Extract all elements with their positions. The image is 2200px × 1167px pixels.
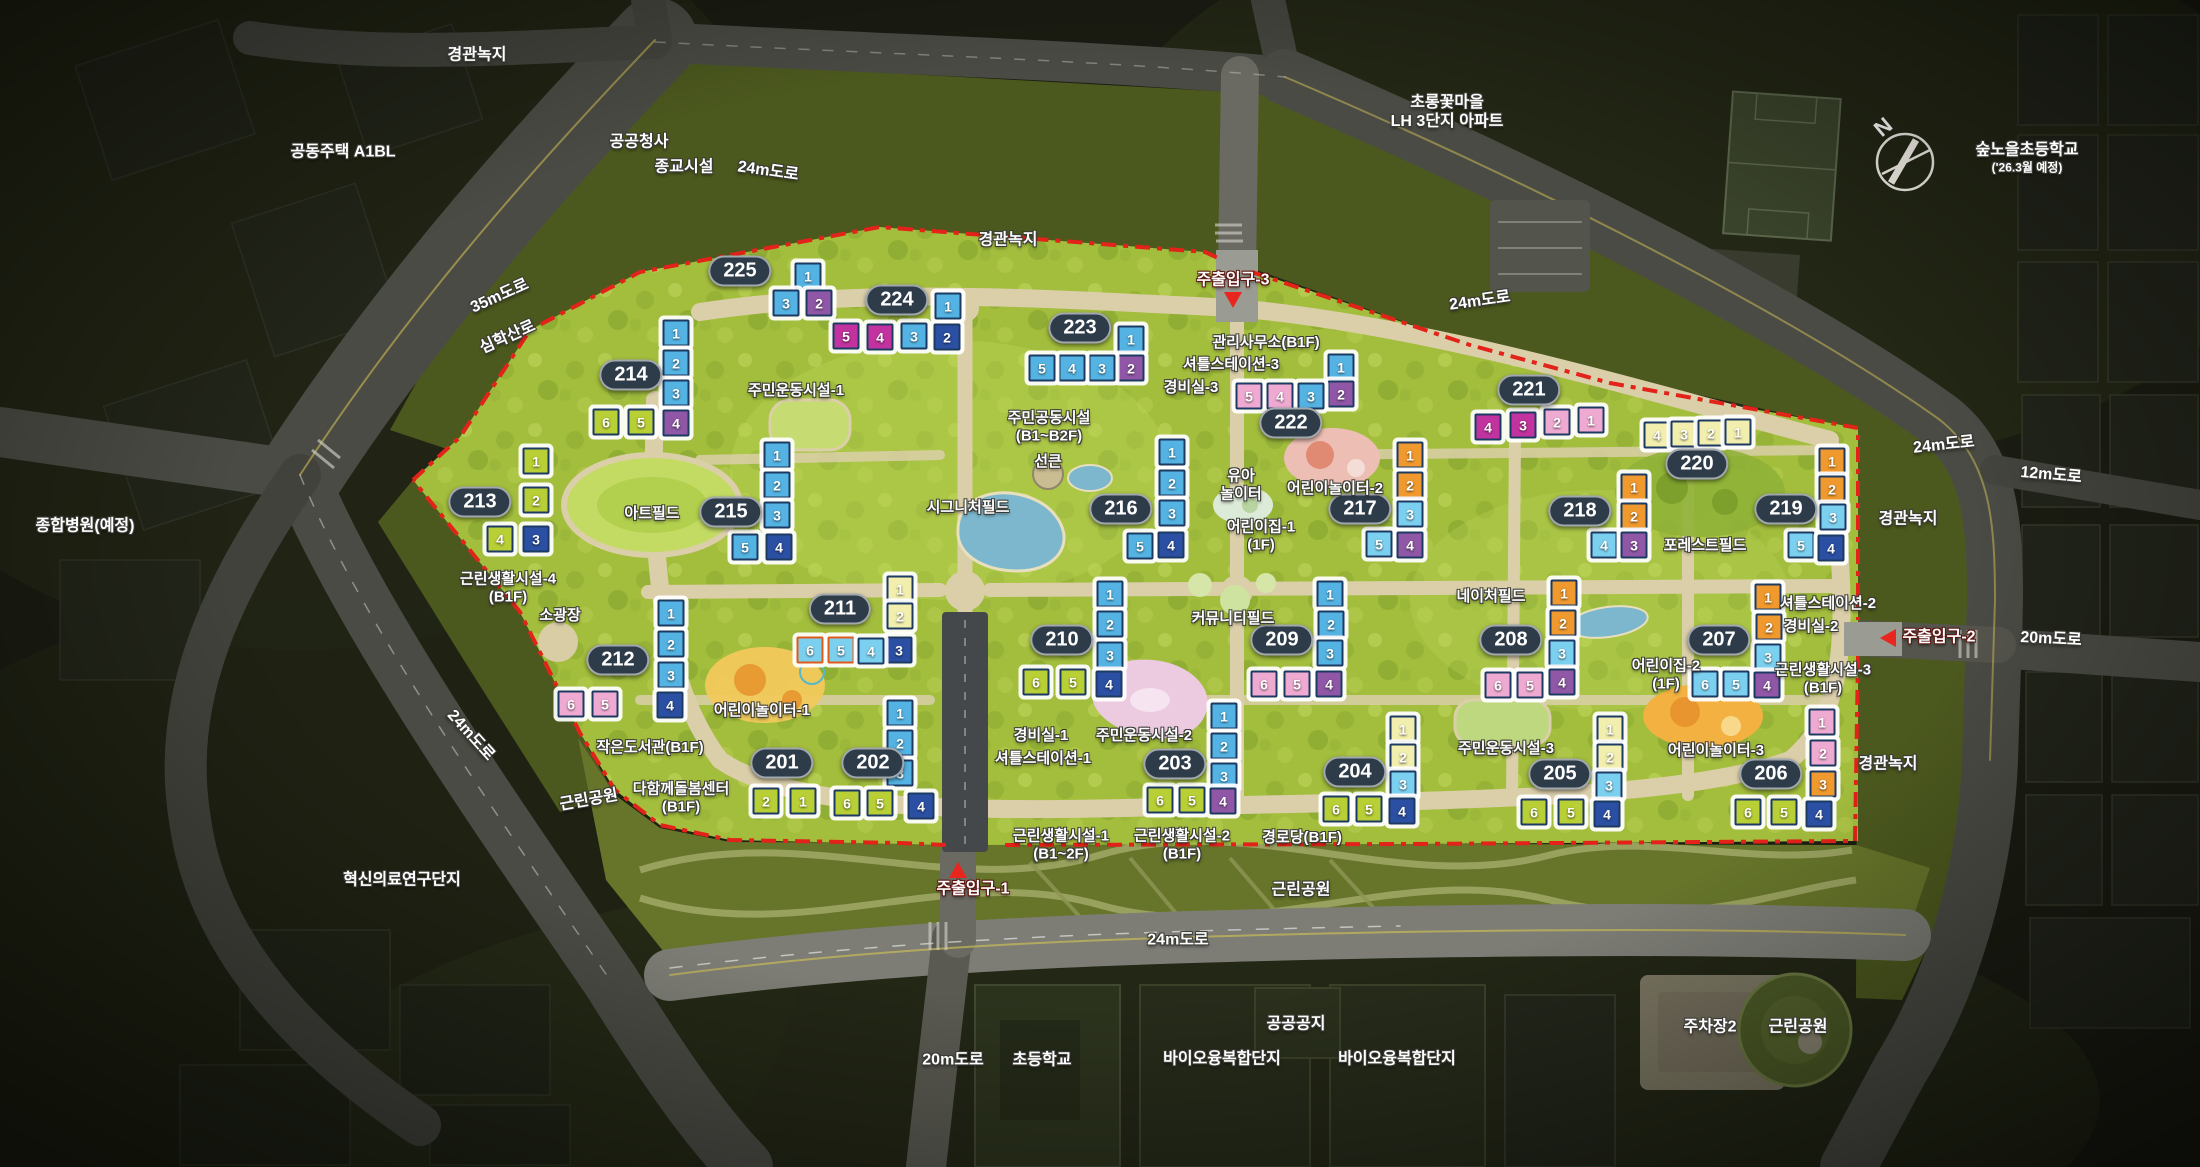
unit-chip: 3 <box>1317 640 1344 667</box>
facility-label: 근린생활시설-1(B1~2F) <box>1013 827 1109 862</box>
unit-chip: 1 <box>1328 354 1355 381</box>
facility-label-text: 근린생활시설-4 <box>460 570 556 588</box>
unit-chip: 3 <box>1621 532 1648 559</box>
facility-label: 선큰 <box>1034 453 1062 471</box>
unit-chip: 5 <box>1723 671 1750 698</box>
facility-label: 다함께돌봄센터(B1F) <box>633 780 730 815</box>
facility-label-text: 셔틀스테이션-2 <box>1780 595 1876 613</box>
unit-chip: 4 <box>1096 671 1123 698</box>
unit-chip: 5 <box>833 323 860 350</box>
area-label: 바이오융복합단지 <box>1163 1051 1281 1070</box>
unit-chip: 2 <box>887 603 914 630</box>
unit-chip: 3 <box>1159 500 1186 527</box>
facility-label: 주민운동시설-3 <box>1458 740 1554 758</box>
unit-chip: 4 <box>1397 532 1424 559</box>
unit-chip: 2 <box>1698 420 1725 447</box>
unit-chip: 2 <box>1819 476 1846 503</box>
unit-chip: 5 <box>867 790 894 817</box>
area-label-text: 공동주택 A1BL <box>290 144 395 163</box>
unit-chip: 3 <box>1390 771 1417 798</box>
unit-chip: 1 <box>887 700 914 727</box>
unit-chip: 5 <box>1029 355 1056 382</box>
entrance-label: 주출입구-1 <box>936 881 1009 900</box>
building-badge-225: 225 <box>708 256 771 287</box>
facility-label: 주민공동시설(B1~B2F) <box>1008 409 1091 444</box>
unit-chip: 6 <box>1521 799 1548 826</box>
unit-chip: 5 <box>1127 533 1154 560</box>
area-label: 초등학교 <box>1013 1052 1072 1071</box>
unit-chip: 2 <box>1211 733 1238 760</box>
facility-label-text: 어린이집-2 <box>1632 657 1701 675</box>
facility-label: 주민운동시설-2 <box>1096 727 1192 745</box>
unit-chip: 1 <box>1097 581 1124 608</box>
unit-chip: 4 <box>1594 801 1621 828</box>
unit-chip: 5 <box>1366 531 1393 558</box>
unit-chip: 6 <box>1023 669 1050 696</box>
unit-chip: 3 <box>1810 771 1837 798</box>
unit-chip: 3 <box>764 502 791 529</box>
apartment-site-plan: N 35m도로심학산로24m도로24m도로24m도로24m도로24m도로12m도… <box>0 0 2200 1167</box>
unit-chip: 6 <box>558 691 585 718</box>
area-label-text: 경관녹지 <box>1859 756 1918 775</box>
unit-chip: 1 <box>1317 581 1344 608</box>
building-badge-209: 209 <box>1250 625 1313 656</box>
building-badge-218: 218 <box>1548 496 1611 527</box>
area-label: 종합병원(예정) <box>36 518 135 537</box>
building-badge-205: 205 <box>1528 759 1591 790</box>
facility-label-text: 경비실-1 <box>1014 727 1069 745</box>
area-label: 종교시설 <box>655 159 714 178</box>
area-label: 초롱꽃마을LH 3단지 아파트 <box>1391 94 1504 132</box>
facility-label-text: 주민운동시설-1 <box>748 382 844 400</box>
unit-chip: 3 <box>901 323 928 350</box>
unit-chip: 2 <box>1597 744 1624 771</box>
facility-label-text: 주민운동시설-3 <box>1458 740 1554 758</box>
unit-chip: 3 <box>1097 642 1124 669</box>
facility-label-text: 어린이놀이터-3 <box>1668 742 1764 760</box>
facility-label: 셔틀스테이션-1 <box>995 750 1091 768</box>
road-label-text: 20m도로 <box>2020 629 2082 651</box>
unit-chip: 6 <box>1323 796 1350 823</box>
building-badge-217: 217 <box>1328 494 1391 525</box>
unit-chip: 2 <box>1397 472 1424 499</box>
facility-label-text: 주민운동시설-2 <box>1096 727 1192 745</box>
unit-chip: 5 <box>1788 532 1815 559</box>
building-badge-201: 201 <box>750 748 813 779</box>
facility-label-text: 놀이터 <box>1220 485 1261 503</box>
facility-label-text: 경비실-3 <box>1164 379 1219 397</box>
unit-chip: 4 <box>1210 788 1237 815</box>
building-badge-220: 220 <box>1665 449 1728 480</box>
entrance-arrow-icon <box>949 862 967 878</box>
facility-label: 소광장 <box>539 607 580 625</box>
unit-chip: 2 <box>1621 503 1648 530</box>
unit-chip: 1 <box>1755 584 1782 611</box>
unit-chip: 5 <box>1179 787 1206 814</box>
unit-chip: 2 <box>753 788 780 815</box>
unit-chip: 4 <box>1158 532 1185 559</box>
facility-label: 포레스트필드 <box>1664 537 1747 555</box>
unit-chip: 1 <box>1725 419 1752 446</box>
building-badge-214: 214 <box>599 360 662 391</box>
unit-chip: 2 <box>523 487 550 514</box>
facility-label-text: 소광장 <box>539 607 580 625</box>
facility-label: 경비실-1 <box>1014 727 1069 745</box>
area-label-text: 공공청사 <box>610 134 669 153</box>
area-label: 경관녹지 <box>1859 756 1918 775</box>
building-badge-211: 211 <box>809 594 871 625</box>
unit-chip: 2 <box>1118 355 1145 382</box>
unit-chip: 2 <box>764 472 791 499</box>
unit-chip: 5 <box>1060 669 1087 696</box>
unit-chip: 5 <box>1771 799 1798 826</box>
facility-label-text: 주민공동시설 <box>1008 409 1091 427</box>
unit-chip: 3 <box>886 637 913 664</box>
unit-chip: 2 <box>1756 614 1783 641</box>
unit-chip: 1 <box>663 320 690 347</box>
unit-chip: 3 <box>1671 421 1698 448</box>
facility-label-text: (B1F) <box>1775 679 1871 697</box>
building-badge-202: 202 <box>841 748 904 779</box>
unit-chip: 4 <box>858 638 885 665</box>
facility-label-text: 포레스트필드 <box>1664 537 1747 555</box>
building-badge-224: 224 <box>865 285 928 316</box>
building-badge-210: 210 <box>1030 625 1093 656</box>
facility-label-text: 어린이집-1 <box>1227 518 1296 536</box>
facility-label: 경비실-2 <box>1784 618 1839 636</box>
building-badge-204: 204 <box>1323 757 1386 788</box>
unit-chip: 2 <box>663 350 690 377</box>
facility-label: 관리사무소(B1F) <box>1212 334 1319 352</box>
unit-chip: 1 <box>1621 474 1648 501</box>
unit-chip: 6 <box>1147 787 1174 814</box>
facility-label-text: 작은도서관(B1F) <box>596 739 703 757</box>
road-label: 20m도로 <box>922 1052 983 1071</box>
facility-label: 셔틀스테이션-2 <box>1780 595 1876 613</box>
unit-chip: 1 <box>1211 703 1238 730</box>
unit-chip: 5 <box>628 409 655 436</box>
facility-label-text: (B1~2F) <box>1013 845 1109 863</box>
building-badge-223: 223 <box>1048 313 1111 344</box>
area-label-text: 바이오융복합단지 <box>1338 1051 1456 1070</box>
facility-label: 작은도서관(B1F) <box>596 739 703 757</box>
facility-label-text: (B1~B2F) <box>1008 427 1091 445</box>
unit-chip: 4 <box>1591 532 1618 559</box>
area-label: 공공청사 <box>610 134 669 153</box>
unit-chip: 1 <box>1819 448 1846 475</box>
building-badge-213: 213 <box>448 487 511 518</box>
facility-label-text: 경비실-2 <box>1784 618 1839 636</box>
facility-label-text: (B1F) <box>633 798 730 816</box>
area-label-text: 혁신의료연구단지 <box>343 872 461 891</box>
unit-chip: 6 <box>1485 672 1512 699</box>
unit-chip: 6 <box>1251 671 1278 698</box>
facility-label: 어린이집-2(1F) <box>1632 657 1701 692</box>
unit-chip: 1 <box>795 263 822 290</box>
facility-label: 네이처필드 <box>1456 588 1525 606</box>
unit-chip: 1 <box>935 293 962 320</box>
area-label-text: 종합병원(예정) <box>36 518 135 537</box>
unit-chip: 5 <box>1284 671 1311 698</box>
facility-label-text: 근린생활시설-3 <box>1775 661 1871 679</box>
facility-label-text: (1F) <box>1632 675 1701 693</box>
unit-chip: 1 <box>1578 407 1605 434</box>
unit-chip: 4 <box>766 534 793 561</box>
area-label: 근린공원 <box>1769 1019 1828 1038</box>
unit-chip: 4 <box>1549 669 1576 696</box>
facility-label: 경비실-3 <box>1164 379 1219 397</box>
unit-chip: 2 <box>1159 470 1186 497</box>
unit-chip: 1 <box>1390 716 1417 743</box>
facility-label: 어린이놀이터-3 <box>1668 742 1764 760</box>
area-label: 주차장2 <box>1683 1019 1736 1038</box>
unit-chip: 5 <box>732 534 759 561</box>
facility-label: 근린생활시설-2(B1F) <box>1134 827 1230 862</box>
area-label-text: 바이오융복합단지 <box>1163 1051 1281 1070</box>
unit-chip: 4 <box>1644 422 1671 449</box>
facility-label-text: 네이처필드 <box>1456 588 1525 606</box>
area-label-text: 주차장2 <box>1683 1019 1736 1038</box>
unit-chip: 1 <box>523 448 550 475</box>
area-label: 경관녹지 <box>1879 511 1938 530</box>
area-label-text: 근린공원 <box>1769 1019 1828 1038</box>
unit-chip: 2 <box>1328 381 1355 408</box>
facility-label: 근린생활시설-4(B1F) <box>460 570 556 605</box>
facility-label-text: 어린이놀이터-2 <box>1287 480 1383 498</box>
unit-chip: 2 <box>806 290 833 317</box>
facility-label-text: 경로당(B1F) <box>1262 829 1342 847</box>
unit-chip: 4 <box>1806 801 1833 828</box>
facility-label-text: 근린생활시설-1 <box>1013 827 1109 845</box>
unit-chip: 1 <box>764 442 791 469</box>
road-label-text: 20m도로 <box>922 1052 983 1071</box>
area-label: 바이오융복합단지 <box>1338 1051 1456 1070</box>
unit-chip: 4 <box>663 410 690 437</box>
area-label-text: 종교시설 <box>655 159 714 178</box>
unit-chip: 2 <box>658 631 685 658</box>
unit-chip: 4 <box>1818 535 1845 562</box>
area-label-text: ('26.3월 예정) <box>1975 160 2078 174</box>
building-badge-212: 212 <box>586 645 649 676</box>
unit-chip: 1 <box>1118 326 1145 353</box>
area-label: 경관녹지 <box>979 232 1038 251</box>
facility-label-text: (1F) <box>1227 536 1296 554</box>
entrance-label-text: 주출입구-1 <box>936 881 1009 900</box>
unit-chip: 2 <box>1544 409 1571 436</box>
facility-label-text: 셔틀스테이션-3 <box>1183 356 1279 374</box>
unit-chip: 3 <box>658 662 685 689</box>
area-label: 공동주택 A1BL <box>290 144 395 163</box>
building-badge-221: 221 <box>1497 375 1560 406</box>
road-label: 20m도로 <box>2020 629 2082 651</box>
unit-chip: 3 <box>1089 355 1116 382</box>
area-label-text: 초롱꽃마을 <box>1391 94 1504 113</box>
facility-label: 근린생활시설-3(B1F) <box>1775 661 1871 696</box>
building-badge-216: 216 <box>1089 494 1152 525</box>
unit-chip: 3 <box>1510 412 1537 439</box>
unit-chip: 3 <box>773 290 800 317</box>
facility-label-text: 관리사무소(B1F) <box>1212 334 1319 352</box>
unit-chip: 4 <box>1267 383 1294 410</box>
unit-chip: 1 <box>1597 716 1624 743</box>
unit-chip: 2 <box>1810 740 1837 767</box>
building-badge-215: 215 <box>699 497 762 528</box>
unit-chip: 2 <box>1550 610 1577 637</box>
facility-label-text: (B1F) <box>1134 845 1230 863</box>
unit-chip: 1 <box>1809 709 1836 736</box>
area-label-text: 경관녹지 <box>1879 511 1938 530</box>
facility-label-text: 어린이놀이터-1 <box>714 702 810 720</box>
facility-label-text: 다함께돌봄센터 <box>633 780 730 798</box>
unit-chip: 5 <box>1236 383 1263 410</box>
facility-label: 셔틀스테이션-3 <box>1183 356 1279 374</box>
unit-chip: 6 <box>1735 799 1762 826</box>
facility-label: 아트필드 <box>624 505 679 523</box>
unit-chip: 1 <box>1159 439 1186 466</box>
building-badge-206: 206 <box>1739 759 1802 790</box>
area-label: 경관녹지 <box>448 47 507 66</box>
unit-chip: 3 <box>1298 383 1325 410</box>
facility-label: 어린이놀이터-1 <box>714 702 810 720</box>
entrance-label-text: 주출입구-2 <box>1902 629 1975 648</box>
entrance-arrow-icon <box>1880 629 1896 647</box>
facility-label: 경로당(B1F) <box>1262 829 1342 847</box>
unit-chip: 3 <box>663 380 690 407</box>
entrance-label: 주출입구-2 <box>1902 629 1975 648</box>
entrance-arrow-icon <box>1224 292 1242 308</box>
facility-label: 어린이집-1(1F) <box>1227 518 1296 553</box>
unit-chip: 4 <box>487 526 514 553</box>
facility-label: 어린이놀이터-2 <box>1287 480 1383 498</box>
area-label-text: 근린공원 <box>1272 882 1331 901</box>
unit-chip: 1 <box>887 576 914 603</box>
facility-label-text: 아트필드 <box>624 505 679 523</box>
unit-chip: 4 <box>1389 798 1416 825</box>
unit-chip: 4 <box>1475 414 1502 441</box>
facility-label-text: 근린생활시설-2 <box>1134 827 1230 845</box>
facility-label: 유아놀이터 <box>1220 467 1261 502</box>
entrance-label-text: 주출입구-3 <box>1196 272 1269 291</box>
unit-chip: 2 <box>1390 744 1417 771</box>
unit-chip: 2 <box>1097 611 1124 638</box>
unit-chip: 4 <box>1059 355 1086 382</box>
unit-chip: 5 <box>1517 672 1544 699</box>
unit-chip: 3 <box>1211 763 1238 790</box>
building-badge-207: 207 <box>1687 625 1750 656</box>
unit-chip: 1 <box>790 788 817 815</box>
area-label: 혁신의료연구단지 <box>343 872 461 891</box>
building-badge-219: 219 <box>1754 494 1817 525</box>
facility-label-text: 유아 <box>1220 467 1261 485</box>
unit-chip: 2 <box>1318 611 1345 638</box>
building-badge-208: 208 <box>1479 625 1542 656</box>
unit-chip: 6 <box>593 409 620 436</box>
area-label-text: 공공공지 <box>1267 1016 1326 1035</box>
unit-chip: 4 <box>657 692 684 719</box>
unit-chip: 4 <box>867 324 894 351</box>
unit-chip: 1 <box>658 600 685 627</box>
unit-chip: 5 <box>592 691 619 718</box>
area-label-text: LH 3단지 아파트 <box>1391 113 1504 132</box>
entrance-label: 주출입구-3 <box>1196 272 1269 291</box>
area-label-text: 경관녹지 <box>448 47 507 66</box>
area-label: 숲노을초등학교('26.3월 예정) <box>1975 141 2078 174</box>
area-label: 근린공원 <box>1272 882 1331 901</box>
facility-label: 시그니처필드 <box>927 499 1010 517</box>
unit-chip: 6 <box>834 790 861 817</box>
area-label-text: 경관녹지 <box>979 232 1038 251</box>
unit-chip: 4 <box>1316 671 1343 698</box>
unit-chip: 3 <box>1820 504 1847 531</box>
unit-chip: 5 <box>828 637 855 664</box>
facility-label-text: (B1F) <box>460 588 556 606</box>
facility-label-text: 커뮤니티필드 <box>1192 610 1275 628</box>
facility-label-text: 셔틀스테이션-1 <box>995 750 1091 768</box>
building-badge-203: 203 <box>1143 749 1206 780</box>
unit-chip: 6 <box>797 637 824 664</box>
facility-label: 주민운동시설-1 <box>748 382 844 400</box>
road-label-text: 24m도로 <box>1147 932 1208 951</box>
road-label: 24m도로 <box>1147 932 1208 951</box>
unit-chip: 5 <box>1356 796 1383 823</box>
unit-chip: 4 <box>908 793 935 820</box>
area-label-text: 숲노을초등학교 <box>1975 141 2078 160</box>
unit-chip: 3 <box>1549 640 1576 667</box>
area-label: 공공공지 <box>1267 1016 1326 1035</box>
building-badge-222: 222 <box>1259 408 1322 439</box>
unit-chip: 3 <box>523 526 550 553</box>
unit-chip: 1 <box>1397 442 1424 469</box>
area-label-text: 초등학교 <box>1013 1052 1072 1071</box>
unit-chip: 3 <box>1397 501 1424 528</box>
facility-label: 커뮤니티필드 <box>1192 610 1275 628</box>
facility-label-text: 시그니처필드 <box>927 499 1010 517</box>
facility-label-text: 선큰 <box>1034 453 1062 471</box>
unit-chip: 3 <box>1596 772 1623 799</box>
unit-chip: 5 <box>1558 799 1585 826</box>
unit-chip: 2 <box>934 324 961 351</box>
unit-chip: 1 <box>1551 580 1578 607</box>
